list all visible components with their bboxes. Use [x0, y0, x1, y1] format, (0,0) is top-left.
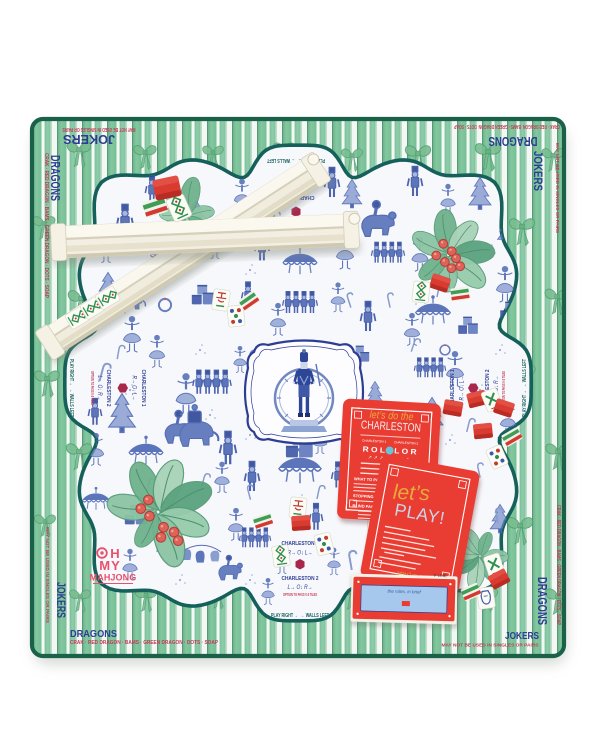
- svg-text:✝ LINE: ✝ LINE: [433, 573, 447, 578]
- svg-text:CHARLESTON 1: CHARLESTON 1: [140, 370, 146, 407]
- svg-text:OPTION TO PASS 0-3 TILES: OPTION TO PASS 0-3 TILES: [90, 371, 95, 405]
- svg-text:CRAK · RED DRAGON · BAMS · GRE: CRAK · RED DRAGON · BAMS · GREEN DRAGON …: [555, 505, 561, 626]
- svg-text:DRAGONS: DRAGONS: [48, 155, 63, 201]
- svg-text:DRAGONS: DRAGONS: [70, 628, 117, 640]
- svg-text:CRAK · RED DRAGON · BAMS · GRE: CRAK · RED DRAGON · BAMS · GREEN DRAGON …: [43, 153, 49, 298]
- svg-text:MAY NOT BE USED IN SINGLES OR: MAY NOT BE USED IN SINGLES OR PAIRS: [62, 126, 135, 132]
- svg-text:MAY NOT BE USED IN SINGLES OR: MAY NOT BE USED IN SINGLES OR PAIRS: [554, 143, 560, 234]
- svg-text:PLAY RIGHT → ← WALLS LEFT: PLAY RIGHT → ← WALLS LEFT: [522, 359, 528, 417]
- svg-text:OPTION TO PASS 0-3 TILES: OPTION TO PASS 0-3 TILES: [283, 592, 317, 597]
- svg-text:L→ O↓ R→: L→ O↓ R→: [288, 585, 313, 591]
- svg-text:PLAY RIGHT → ← WALLS LEFT: PLAY RIGHT → ← WALLS LEFT: [271, 613, 329, 619]
- svg-text:JOKERS: JOKERS: [63, 132, 115, 147]
- svg-text:R→ O↓ L→: R→ O↓ L→: [288, 551, 313, 557]
- svg-text:MAY NOT BE USED IN SINGLES OR: MAY NOT BE USED IN SINGLES OR PAIRS: [442, 643, 539, 648]
- svg-text:DRAGONS: DRAGONS: [535, 577, 549, 625]
- svg-text:PLAY RIGHT → ← WALLS LEFT: PLAY RIGHT → ← WALLS LEFT: [68, 359, 74, 417]
- svg-text:JOKERS: JOKERS: [505, 631, 539, 642]
- svg-text:R→ O↓ L→: R→ O↓ L→: [460, 376, 466, 401]
- svg-text:MAHJONG: MAHJONG: [90, 573, 137, 583]
- svg-text:CHARLESTON 2: CHARLESTON 2: [105, 370, 111, 407]
- svg-text:JOKERS: JOKERS: [531, 151, 545, 191]
- svg-text:MAY NOT BE USED IN SINGLES OR: MAY NOT BE USED IN SINGLES OR PAIRS: [44, 527, 50, 624]
- svg-text:L→ O↓ R→: L→ O↓ R→: [96, 376, 102, 401]
- svg-text:MY: MY: [99, 558, 121, 573]
- svg-text:JOKERS: JOKERS: [54, 582, 68, 618]
- svg-text:R→ O↓ L→: R→ O↓ L→: [131, 376, 137, 401]
- svg-text:CRAK · RED DRAGON BAMS · GREE: CRAK · RED DRAGON BAMS · GREEN DRAGON DO…: [454, 123, 560, 129]
- svg-text:DRAGONS: DRAGONS: [488, 134, 537, 149]
- svg-text:CRAK · RED DRAGON · BAMS · GRE: CRAK · RED DRAGON · BAMS · GREEN DRAGON …: [70, 640, 219, 646]
- svg-text:the rules, in brief: the rules, in brief: [387, 589, 421, 595]
- svg-text:CHARLESTON 2: CHARLESTON 2: [282, 576, 319, 582]
